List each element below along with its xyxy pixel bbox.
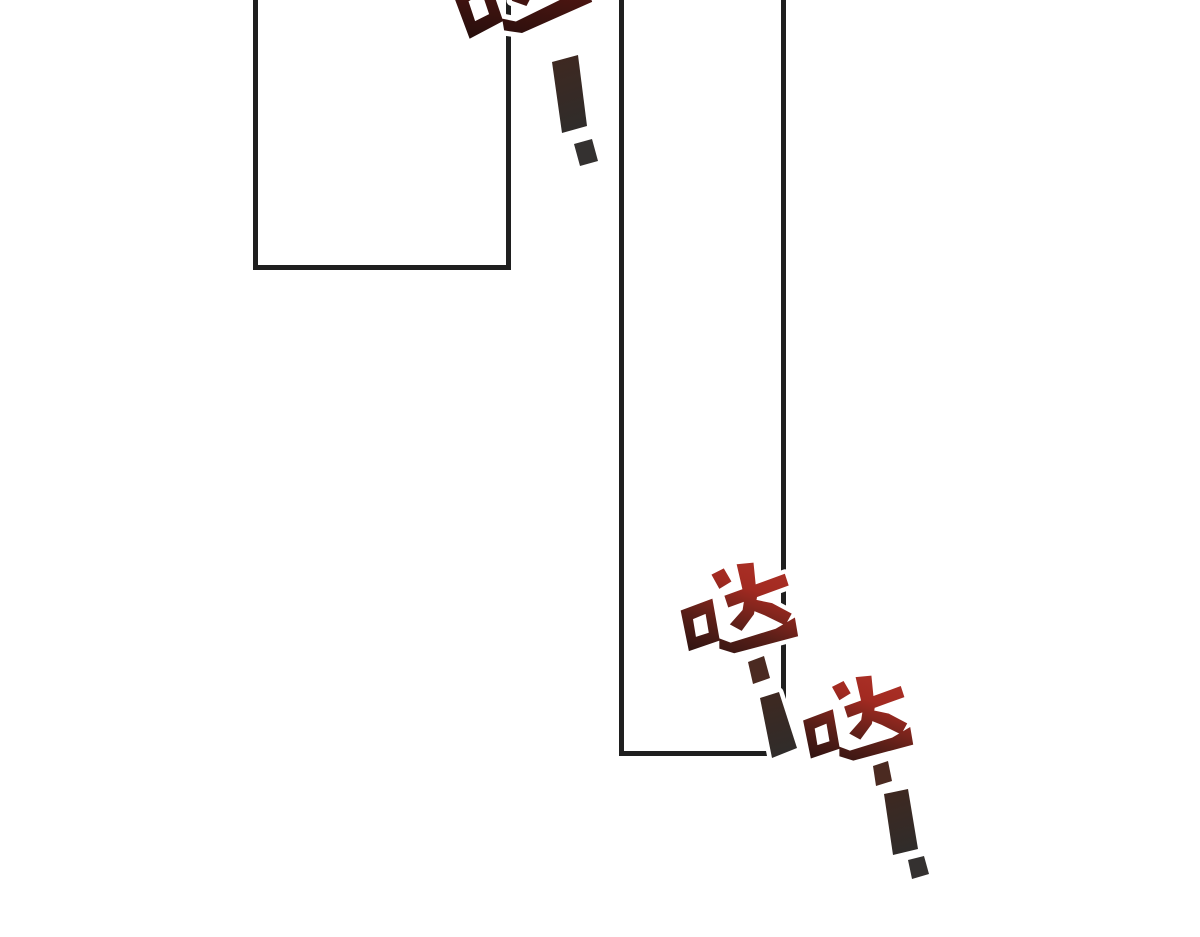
sfx-da-bottom — [795, 667, 915, 769]
excl-bar — [884, 789, 918, 855]
sfx-da-top — [437, 0, 595, 52]
sfx-layer — [0, 0, 1200, 937]
excl-bar — [552, 55, 587, 133]
sfx-da-middle — [672, 554, 801, 663]
excl-bar — [760, 692, 797, 758]
excl-dot — [908, 856, 929, 879]
sfx-excl-middle — [748, 656, 797, 758]
sfx-da-middle-glyph — [672, 554, 801, 663]
sfx-excl-bottom — [873, 761, 929, 879]
excl-dot — [574, 139, 598, 166]
excl-dash — [873, 761, 892, 786]
sfx-da-bottom-glyph — [795, 667, 915, 769]
sfx-da-top-glyph — [437, 0, 595, 52]
sfx-excl-top — [552, 55, 598, 166]
comic-page — [0, 0, 1200, 937]
excl-dash — [748, 656, 770, 684]
